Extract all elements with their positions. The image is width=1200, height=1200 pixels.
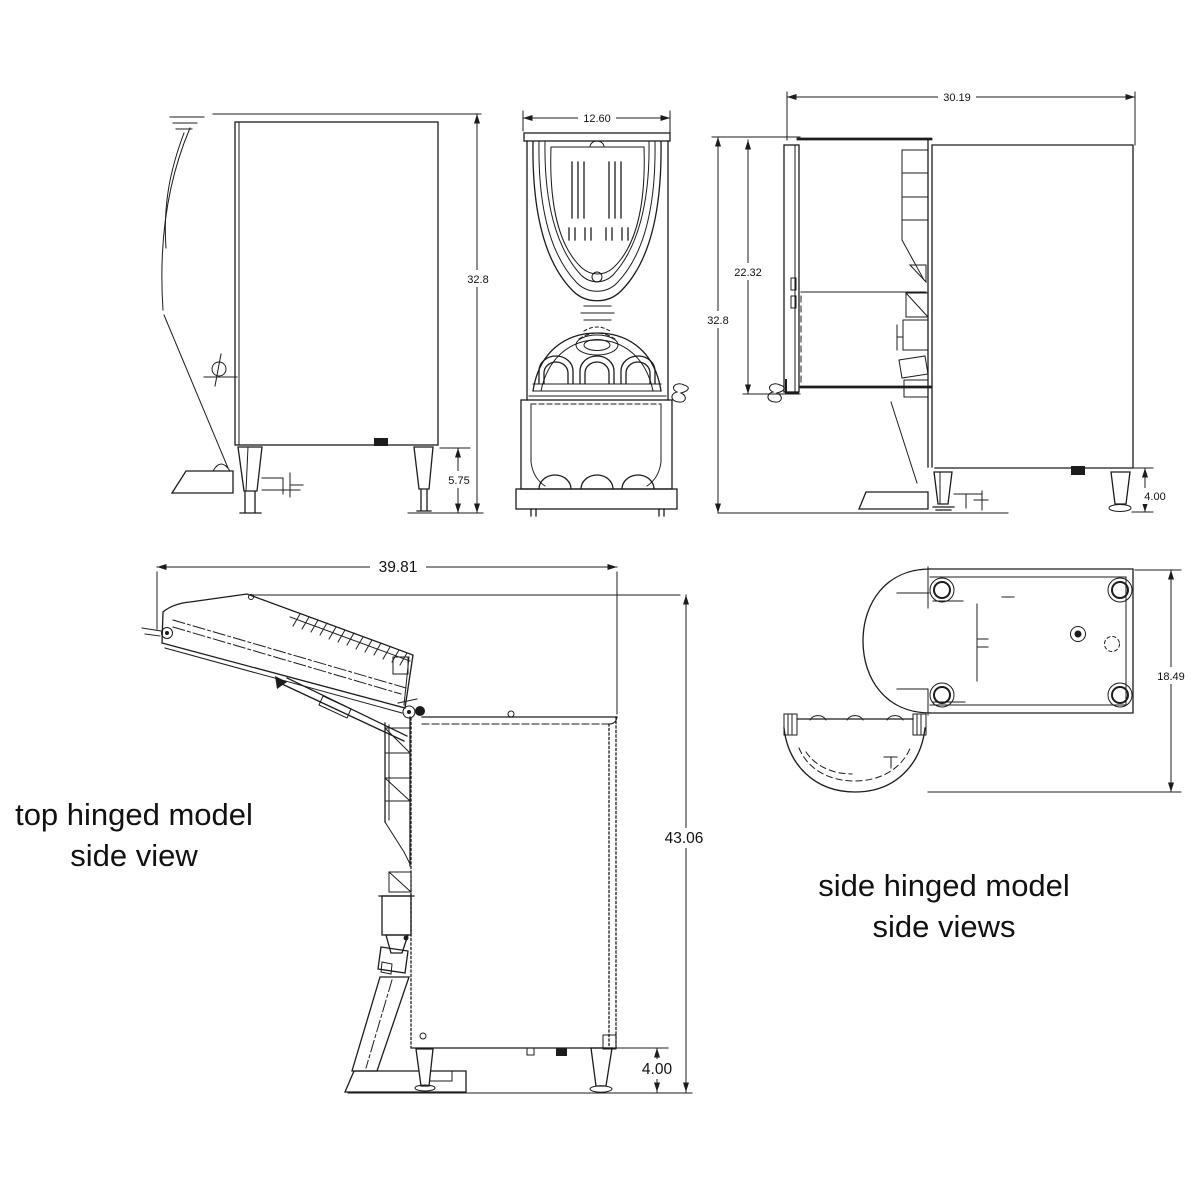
dim-label: 43.06 <box>665 830 704 847</box>
dim-v1-leg: 5.75 <box>440 448 475 513</box>
dim-label: 5.75 <box>448 475 469 487</box>
dim-v3-height: 32.8 <box>701 137 735 513</box>
open-lid <box>142 594 413 713</box>
dim-label: 30.19 <box>943 92 971 104</box>
dim-label: 39.81 <box>379 559 418 576</box>
dim-label: 32.8 <box>467 274 488 286</box>
dim-v4-width: 39.81 <box>157 557 617 714</box>
dim-v3-door: 22.32 <box>729 140 800 394</box>
caption-side-hinged-line1: side hinged model <box>818 868 1070 903</box>
dim-label: 18.49 <box>1157 671 1185 683</box>
foot-bolts <box>930 578 1132 707</box>
view-top-hinged: 39.81 <box>15 557 712 1093</box>
drawing-page: 32.8 5.75 12.60 <box>0 0 1200 1200</box>
view-side-open: 30.19 <box>701 88 1172 513</box>
lid-hinge <box>398 699 425 718</box>
dim-v4-leg: 4.00 <box>617 1048 680 1092</box>
dim-label: 4.00 <box>1144 491 1165 503</box>
dim-label: 4.00 <box>642 1061 673 1078</box>
dim-v4-height: 43.06 <box>656 595 712 1092</box>
hook-symbol <box>672 384 688 402</box>
view-side-closed: 32.8 5.75 <box>162 114 495 513</box>
caption-top-hinged-line2: side view <box>70 838 198 873</box>
dim-label: 12.60 <box>583 113 611 125</box>
dim-v3-depth: 30.19 <box>787 88 1135 145</box>
centerline-symbol <box>204 354 237 386</box>
technical-drawing: 32.8 5.75 12.60 <box>0 0 1200 1200</box>
hook-symbol <box>768 384 784 402</box>
dim-v2-width: 12.60 <box>523 109 670 133</box>
dim-v3-leg: 4.00 <box>1132 468 1172 512</box>
dim-v1-height: 32.8 <box>461 114 495 513</box>
drip-tray-top-view <box>784 714 926 792</box>
caption-top-hinged-line1: top hinged model <box>15 797 253 832</box>
view-side-hinged: 18.49 side hinged model side views <box>784 567 1191 944</box>
dim-label: 22.32 <box>734 267 762 279</box>
dim-v5-depth: 18.49 <box>928 570 1191 792</box>
view-front: 12.60 <box>516 109 688 516</box>
caption-side-hinged-line2: side views <box>873 909 1016 944</box>
dim-label: 32.8 <box>707 315 728 327</box>
